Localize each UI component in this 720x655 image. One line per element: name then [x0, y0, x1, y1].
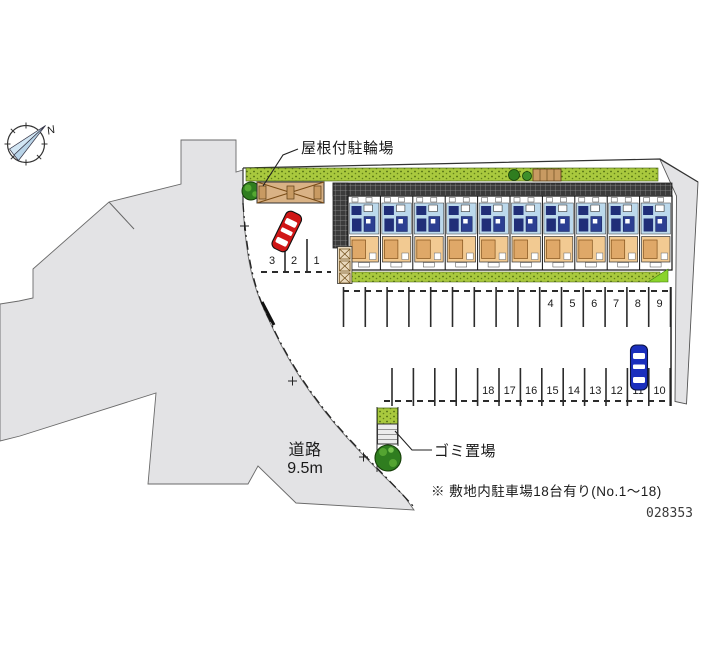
- fixture: [463, 219, 468, 224]
- entry-mark: [658, 198, 664, 203]
- furniture: [449, 240, 463, 259]
- leader-line-garbage: [395, 431, 432, 450]
- apartment-unit: [413, 196, 444, 270]
- apartment-unit: [607, 196, 638, 270]
- fixture: [643, 206, 653, 215]
- furniture: [514, 240, 528, 259]
- fixture: [494, 205, 503, 212]
- furniture: [564, 253, 571, 260]
- fixture: [546, 219, 556, 232]
- blue-car: [631, 345, 648, 390]
- balcony-door: [650, 263, 661, 268]
- apartment-unit: [640, 196, 671, 270]
- entry-mark: [366, 198, 372, 203]
- fixture: [429, 217, 440, 232]
- parking-row-upper: 456789: [343, 287, 671, 327]
- furniture: [384, 240, 398, 259]
- stall-number: 1: [313, 255, 319, 267]
- stall-number: 3: [269, 255, 275, 267]
- fixture: [578, 206, 588, 215]
- furniture: [417, 240, 431, 259]
- road-width-label: 9.5m: [287, 460, 323, 477]
- fixture: [364, 205, 373, 212]
- fixture: [384, 219, 394, 232]
- fixture: [591, 217, 602, 232]
- garbage-bush: [378, 408, 398, 424]
- apartment-unit: [542, 196, 573, 270]
- stall-number: 17: [504, 385, 516, 397]
- fixture: [528, 219, 533, 224]
- entry-mark: [482, 198, 488, 203]
- fixture: [579, 219, 589, 232]
- fixture: [625, 219, 630, 224]
- fixture: [352, 219, 362, 232]
- fixture: [398, 219, 403, 224]
- stall-number: 15: [546, 385, 558, 397]
- stall-number: 6: [591, 298, 597, 310]
- entry-mark: [579, 198, 585, 203]
- furniture: [370, 253, 377, 260]
- fixture: [611, 219, 621, 232]
- fixture: [656, 205, 665, 212]
- fixture: [364, 217, 375, 232]
- fixture: [591, 205, 600, 212]
- entry-mark: [611, 198, 617, 203]
- furniture: [661, 253, 668, 260]
- fixture: [494, 217, 505, 232]
- fixture: [611, 206, 621, 215]
- furniture: [579, 240, 593, 259]
- building: [333, 183, 672, 284]
- fixture: [656, 217, 667, 232]
- fixture: [546, 206, 556, 215]
- balcony-door: [585, 263, 596, 268]
- stall-number: 8: [635, 298, 641, 310]
- furniture: [402, 253, 409, 260]
- entry-mark: [417, 198, 423, 203]
- stall-number: 16: [525, 385, 537, 397]
- stall-number: 7: [613, 298, 619, 310]
- staircase: [338, 247, 353, 284]
- entry-mark: [625, 198, 631, 203]
- fixture: [514, 206, 524, 215]
- stall-number: 13: [589, 385, 601, 397]
- fixture: [416, 206, 426, 215]
- furniture: [546, 240, 560, 259]
- furniture: [467, 253, 474, 260]
- fixture: [526, 217, 537, 232]
- entry-mark: [398, 198, 404, 203]
- entry-mark: [463, 198, 469, 203]
- furniture: [499, 253, 506, 260]
- balcony-door: [423, 263, 434, 268]
- fixture: [514, 219, 524, 232]
- garbage-tree-icon: [375, 445, 401, 471]
- furniture: [434, 253, 441, 260]
- stall-number: 12: [611, 385, 623, 397]
- fixture: [623, 217, 634, 232]
- apartment-unit: [350, 198, 379, 268]
- planting-strip-bottom: [352, 272, 660, 282]
- fixture: [449, 219, 459, 232]
- red-car: [270, 209, 303, 253]
- garbage-label: ゴミ置場: [434, 442, 496, 460]
- balcony-door: [359, 263, 370, 268]
- fixture: [558, 217, 569, 232]
- entry-mark: [593, 198, 599, 203]
- site-plan-svg: 456789181716151413121110321 屋根付駐輪場 ゴミ置場: [0, 0, 720, 655]
- fixture: [384, 206, 394, 215]
- fixture: [558, 205, 567, 212]
- apartment-unit: [510, 196, 541, 270]
- balcony-door: [618, 263, 629, 268]
- stall-number: 2: [291, 255, 297, 267]
- furniture: [482, 240, 496, 259]
- north-label: N: [45, 124, 56, 138]
- apartment-unit: [575, 196, 606, 270]
- fixture: [366, 219, 371, 224]
- fixture: [461, 217, 472, 232]
- fixture: [352, 206, 362, 215]
- stall-number: 10: [653, 385, 665, 397]
- balcony-door: [391, 263, 402, 268]
- fixture: [396, 217, 407, 232]
- parking-row-lower: 181716151413121110: [384, 368, 671, 406]
- stall-number: 14: [568, 385, 580, 397]
- plan-number: 028353: [646, 506, 693, 521]
- entry-mark: [431, 198, 437, 203]
- fixture: [417, 219, 427, 232]
- apartment-unit: [380, 196, 411, 270]
- balcony-door: [456, 263, 467, 268]
- fixture: [623, 205, 632, 212]
- road-label: 道路: [288, 441, 321, 459]
- fixture: [481, 206, 491, 215]
- fixture: [593, 219, 598, 224]
- fixture: [431, 219, 436, 224]
- site-note: ※ 敷地内駐車場18台有り(No.1～18): [431, 484, 662, 499]
- stall-number: 9: [657, 298, 663, 310]
- furniture: [352, 240, 366, 259]
- fixture: [396, 205, 405, 212]
- entry-mark: [352, 198, 358, 203]
- balcony-door: [553, 263, 564, 268]
- furniture: [644, 240, 658, 259]
- furniture: [532, 253, 539, 260]
- stall-number: 5: [569, 298, 575, 310]
- apartment-unit: [478, 196, 509, 270]
- apartment-unit: [445, 196, 476, 270]
- compass-rose: N: [5, 123, 57, 166]
- building-units: [350, 196, 671, 270]
- fixture: [526, 205, 535, 212]
- fixture: [560, 219, 565, 224]
- balcony-door: [521, 263, 532, 268]
- bike-shed: [257, 182, 324, 203]
- entry-mark: [496, 198, 502, 203]
- entry-mark: [528, 198, 534, 203]
- balcony-door: [488, 263, 499, 268]
- furniture: [629, 253, 636, 260]
- garbage-enclosure: [375, 407, 401, 472]
- furniture: [596, 253, 603, 260]
- furniture: [611, 240, 625, 259]
- corridor-strip: [333, 183, 672, 196]
- entry-mark: [644, 198, 650, 203]
- garbage-box: [378, 424, 398, 444]
- fixture: [449, 206, 459, 215]
- fixture: [658, 219, 663, 224]
- stall-number: 18: [482, 385, 494, 397]
- fixture: [429, 205, 438, 212]
- entry-mark: [449, 198, 455, 203]
- bicycle-parking-label: 屋根付駐輪場: [301, 140, 394, 157]
- fixture: [496, 219, 501, 224]
- corridor-strip-left: [333, 183, 348, 248]
- entry-mark: [514, 198, 520, 203]
- fixture: [644, 219, 654, 232]
- stall-number: 4: [548, 298, 554, 310]
- fixture: [461, 205, 470, 212]
- fixture: [482, 219, 492, 232]
- site-plan: 456789181716151413121110321 屋根付駐輪場 ゴミ置場: [0, 0, 720, 655]
- entry-mark: [560, 198, 566, 203]
- entry-mark: [546, 198, 552, 203]
- entry-mark: [384, 198, 390, 203]
